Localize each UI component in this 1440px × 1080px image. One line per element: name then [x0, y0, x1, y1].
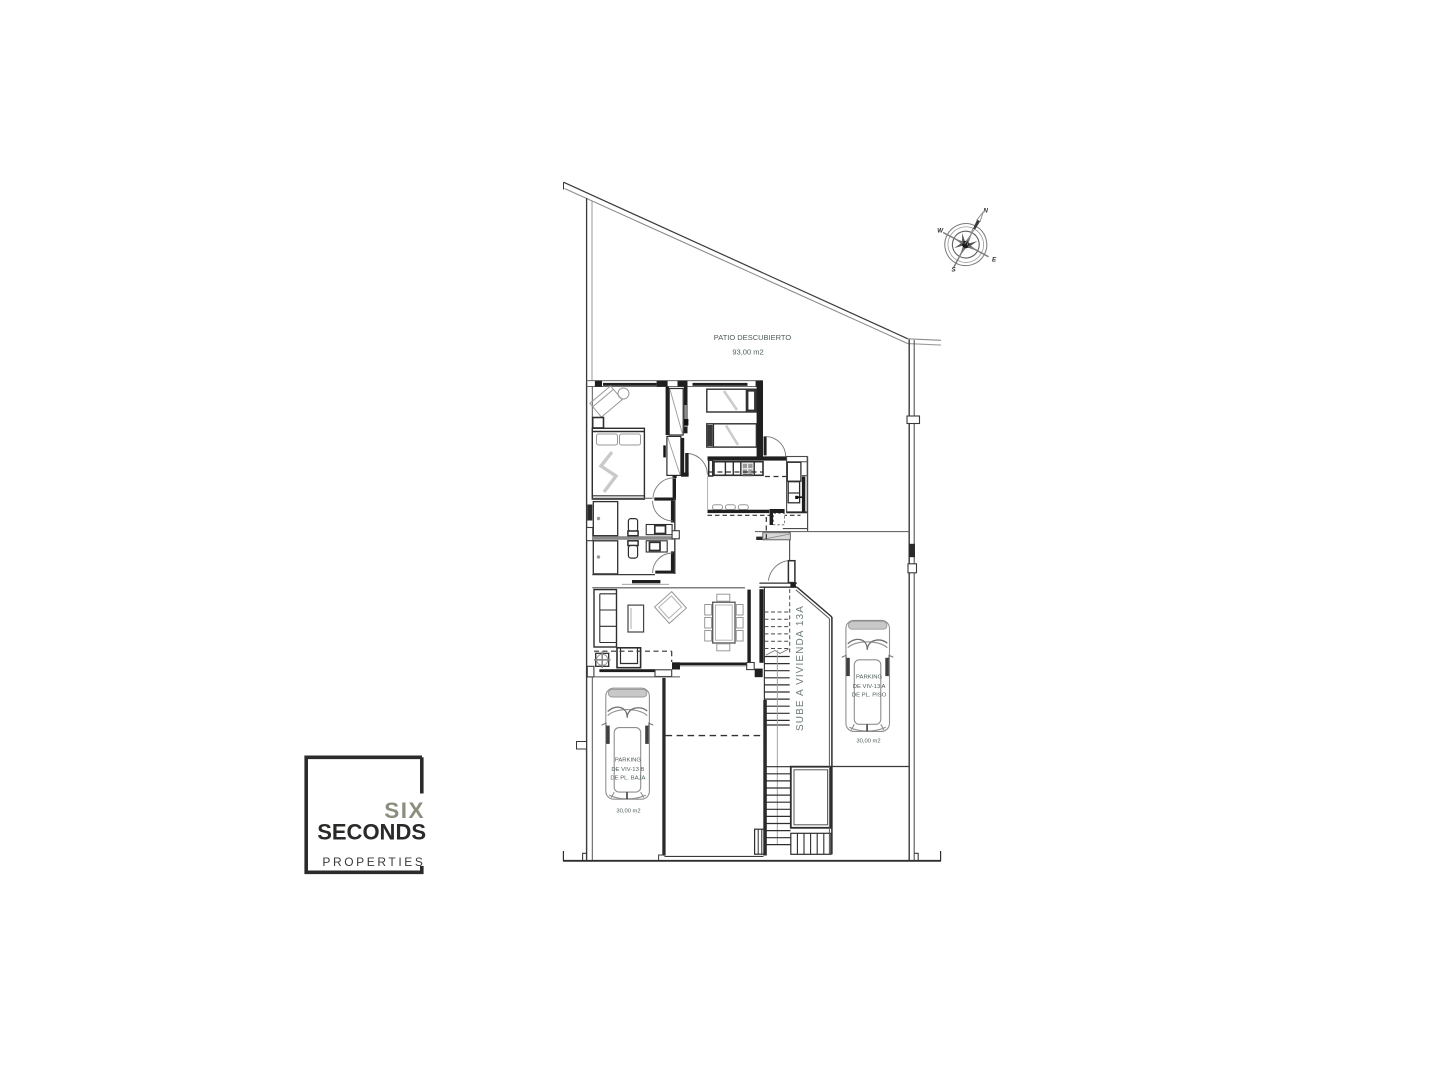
svg-text:DE VIV-13 B: DE VIV-13 B	[611, 767, 644, 773]
svg-text:93,00 m2: 93,00 m2	[732, 348, 763, 357]
svg-text:30,00 m2: 30,00 m2	[616, 809, 640, 815]
svg-text:PARKING: PARKING	[615, 758, 641, 764]
svg-text:DE VIV-13 A: DE VIV-13 A	[853, 684, 886, 690]
svg-text:PROPERTIES: PROPERTIES	[322, 855, 425, 869]
svg-text:SUBE A VIVIENDA 13A: SUBE A VIVIENDA 13A	[795, 605, 806, 731]
svg-text:PATIO DESCUBIERTO: PATIO DESCUBIERTO	[714, 333, 792, 342]
svg-text:N: N	[983, 207, 988, 214]
svg-text:DE PL. PISO: DE PL. PISO	[852, 693, 887, 699]
svg-text:SECONDS: SECONDS	[317, 820, 426, 845]
svg-text:DE PL. BAJA: DE PL. BAJA	[610, 776, 645, 782]
svg-text:30,00 m2: 30,00 m2	[856, 739, 880, 745]
svg-text:PARKING: PARKING	[856, 675, 882, 681]
